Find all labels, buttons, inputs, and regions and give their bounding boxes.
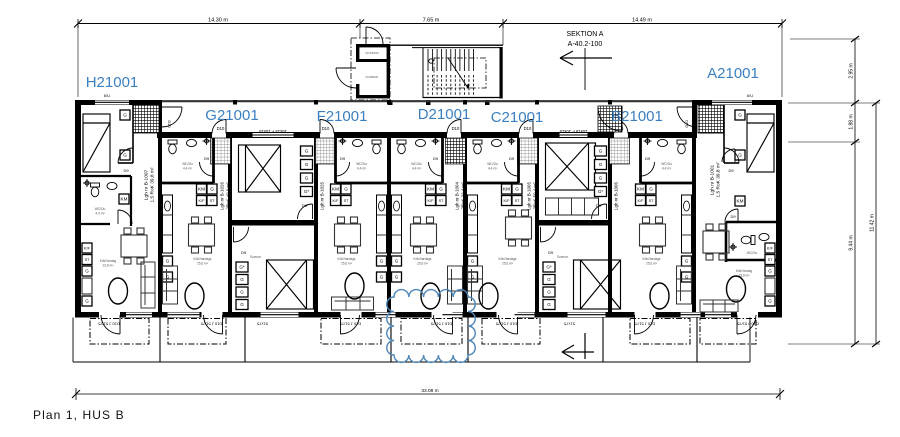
svg-text:G: G [395,275,399,280]
svg-text:G: G [240,277,244,282]
svg-text:D9: D9 [204,156,210,161]
svg-text:D10: D10 [322,126,330,131]
svg-text:FORRAD: FORRAD [366,75,380,79]
svg-text:9.44 m: 9.44 m [849,235,855,250]
svg-text:D10: D10 [167,120,172,128]
svg-text:G: G [685,259,689,264]
svg-text:2.95 m: 2.95 m [849,63,855,78]
svg-text:SOPRUM: SOPRUM [365,51,379,55]
svg-text:G: G [395,259,399,264]
svg-text:D21001: D21001 [418,106,471,123]
svg-text:4,4 m²: 4,4 m² [662,167,672,171]
svg-text:D9: D9 [302,203,308,208]
svg-text:Kök/Vardags: Kök/Vardags [498,257,516,261]
svg-text:F21001: F21001 [317,108,368,125]
svg-text:2RoK 32,4 m²: 2RoK 32,4 m² [461,182,466,210]
svg-text:Lgh nr B-1001: Lgh nr B-1001 [710,164,716,195]
svg-text:D10: D10 [524,126,532,131]
svg-text:4,4 m²: 4,4 m² [95,212,105,216]
svg-text:Lgh nr B-1007: Lgh nr B-1007 [144,169,150,200]
svg-text:G*: G* [546,265,552,270]
svg-text:WC/Du: WC/Du [747,251,758,255]
svg-text:D10 J 51/75: D10 J 51/75 [430,322,452,327]
svg-text:G: G [599,176,603,181]
svg-text:D9: D9 [509,156,515,161]
svg-text:G: G [547,277,551,282]
svg-text:G: G [471,259,475,264]
svg-text:Lgh nr B-1006: Lgh nr B-1006 [614,182,619,210]
svg-text:G: G [738,153,742,158]
svg-text:51x75: 51x75 [256,322,268,327]
svg-text:WC/Du: WC/Du [487,162,498,166]
svg-text:2RoK 49,6 m²: 2RoK 49,6 m² [314,182,319,210]
svg-text:KM: KM [427,187,434,192]
svg-text:D10 J 51/75: D10 J 51/75 [97,322,119,327]
svg-text:G: G [649,187,653,192]
svg-text:K/F: K/F [638,199,645,203]
svg-text:K/F: K/F [428,199,435,203]
svg-text:K/F: K/F [504,199,511,203]
svg-text:G: G [240,290,244,295]
svg-text:D10: D10 [684,120,689,128]
svg-text:SEKTION A: SEKTION A [567,31,604,38]
svg-text:25,6 m²: 25,6 m² [502,262,513,266]
svg-text:G: G [85,299,89,304]
svg-text:10x15 F 10x15: 10x15 F 10x15 [559,129,587,134]
svg-text:D10 J 51/75: D10 J 51/75 [633,322,655,327]
svg-text:Kök/Vardag: Kök/Vardag [736,269,753,273]
svg-text:G: G [599,162,603,167]
svg-text:D9: D9 [241,250,247,255]
svg-text:Kök/Vardags: Kök/Vardags [413,257,431,261]
svg-text:D9: D9 [433,156,439,161]
svg-text:D9: D9 [340,156,346,161]
svg-text:4,4 m²: 4,4 m² [357,167,367,171]
svg-text:7.65 m: 7.65 m [423,18,440,24]
svg-text:G*: G* [598,189,604,194]
svg-text:33.08 m: 33.08 m [421,388,438,394]
svg-text:Kök/Vardags: Kök/Vardags [193,257,211,261]
svg-text:Lgh nr B-1025: Lgh nr B-1025 [320,182,325,210]
svg-text:2RoK 50,4 m²: 2RoK 50,4 m² [608,182,613,210]
svg-text:G: G [166,259,170,264]
svg-text:G: G [344,187,348,192]
svg-text:51x75: 51x75 [563,322,575,327]
svg-text:G: G [768,269,772,274]
svg-text:G: G [210,187,214,192]
svg-text:D9: D9 [123,168,129,173]
svg-text:KM: KM [503,187,510,192]
svg-text:D9: D9 [645,156,651,161]
svg-text:KM: KM [121,197,128,202]
svg-text:23,8 m²: 23,8 m² [103,264,114,268]
svg-text:2RoK 50,4 m²: 2RoK 50,4 m² [533,182,538,210]
svg-text:ST: ST [515,199,521,203]
svg-text:Sovrum: Sovrum [557,255,568,259]
svg-text:H21001: H21001 [86,74,139,91]
svg-text:6/U: 6/U [747,93,753,98]
svg-text:KM: KM [198,187,205,192]
svg-text:K/F: K/F [767,247,774,251]
svg-text:Kök/Vardags: Kök/Vardags [337,257,355,261]
svg-text:2RoK 49,6 m²: 2RoK 49,6 m² [226,182,231,210]
svg-text:25,6 m²: 25,6 m² [197,262,208,266]
svg-text:14.30 m: 14.30 m [208,18,228,24]
svg-text:K/F: K/F [84,247,91,251]
svg-text:D10 J 51/75: D10 J 51/75 [339,322,361,327]
svg-text:K/F: K/F [333,199,340,203]
svg-text:G: G [380,275,384,280]
svg-text:1,5 RoK 39,8 m²: 1,5 RoK 39,8 m² [716,162,722,197]
svg-text:G: G [439,187,443,192]
svg-text:KM: KM [637,187,644,192]
svg-text:ST: ST [210,199,216,203]
svg-text:G: G [85,269,89,274]
svg-text:G: G [123,113,127,118]
svg-text:6/U: 6/U [104,93,110,98]
svg-text:G: G [599,149,603,154]
svg-text:G: G [547,290,551,295]
svg-text:WC/Du: WC/Du [411,162,422,166]
svg-text:G: G [305,162,309,167]
svg-text:G: G [738,113,742,118]
svg-text:ST: ST [85,258,91,262]
svg-text:D9: D9 [728,168,734,173]
svg-text:G: G [305,176,309,181]
svg-text:D10 J 51/75: D10 J 51/75 [495,322,517,327]
svg-text:KM: KM [737,199,744,204]
svg-text:ST: ST [344,199,350,203]
svg-text:WC/Du: WC/Du [356,162,367,166]
svg-text:4,4 m²: 4,4 m² [183,167,193,171]
svg-text:4,4 m²: 4,4 m² [412,167,422,171]
svg-text:G: G [123,153,127,158]
svg-text:B21001: B21001 [611,108,663,125]
svg-text:WC/Du: WC/Du [182,162,193,166]
svg-text:14.49 m: 14.49 m [632,18,652,24]
svg-text:25,6 m²: 25,6 m² [646,262,657,266]
svg-text:ST: ST [439,199,445,203]
svg-text:Lgh nr B-1005: Lgh nr B-1005 [527,182,532,210]
svg-text:Lgh nr B-1026: Lgh nr B-1026 [220,182,225,210]
svg-text:G: G [515,187,519,192]
svg-text:G: G [768,299,772,304]
svg-text:25,6 m²: 25,6 m² [417,262,428,266]
svg-text:4,4 m²: 4,4 m² [488,167,498,171]
svg-text:G21001: G21001 [205,107,258,124]
svg-text:1,5 RoK 39,8 m²: 1,5 RoK 39,8 m² [150,167,156,202]
svg-text:D10: D10 [452,126,460,131]
svg-text:Kök/Vardag: Kök/Vardag [100,259,117,263]
svg-text:ST: ST [768,258,774,262]
svg-text:11.42 m: 11.42 m [870,214,876,232]
svg-text:D10 J 51/75: D10 J 51/75 [200,322,222,327]
svg-text:G: G [547,302,551,307]
svg-text:D9: D9 [548,250,554,255]
svg-text:G: G [240,302,244,307]
svg-text:D10 J 51/75: D10 J 51/75 [736,322,758,327]
svg-text:G: G [305,149,309,154]
svg-text:25,6 m²: 25,6 m² [341,262,352,266]
svg-text:A-40.2-100: A-40.2-100 [568,41,603,48]
svg-text:ST: ST [649,199,655,203]
svg-text:Plan 1, HUS B: Plan 1, HUS B [33,408,125,422]
svg-text:A21001: A21001 [707,65,759,82]
svg-text:D10: D10 [217,126,225,131]
svg-text:D9: D9 [730,214,736,219]
svg-text:Lgh nr B-1004: Lgh nr B-1004 [455,182,460,210]
svg-text:G*: G* [239,265,245,270]
svg-text:WC/Du: WC/Du [95,207,106,211]
svg-text:K/F: K/F [199,199,206,203]
svg-text:KM: KM [332,187,339,192]
svg-text:1.88 m: 1.88 m [849,114,855,129]
svg-text:10x15 F 10x15: 10x15 F 10x15 [258,129,286,134]
svg-text:Sovrum: Sovrum [250,255,261,259]
svg-text:C21001: C21001 [491,109,544,126]
svg-text:WC/Du: WC/Du [661,162,672,166]
svg-text:Kök/Vardags: Kök/Vardags [642,257,660,261]
svg-text:G: G [380,259,384,264]
svg-text:G*: G* [304,189,310,194]
